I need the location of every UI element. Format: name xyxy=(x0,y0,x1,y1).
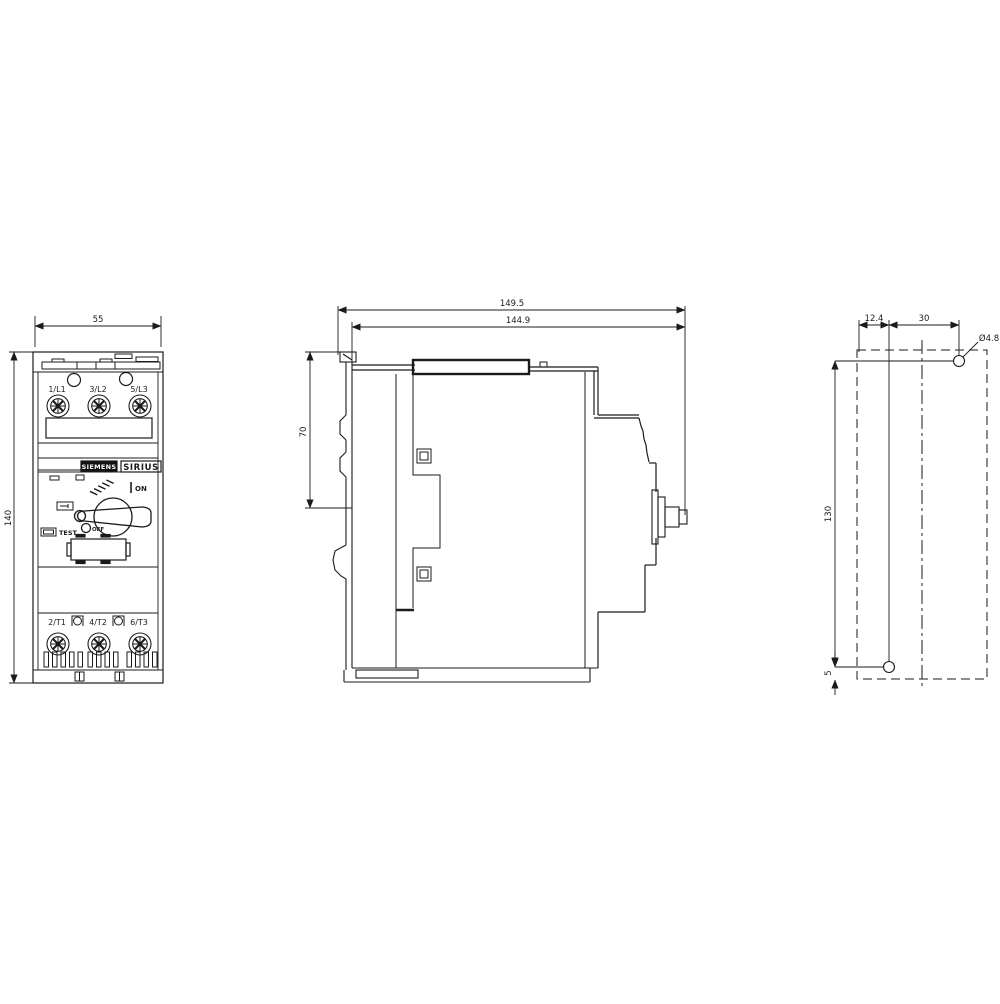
side-right-profile xyxy=(594,367,656,668)
trip-indicator-icon xyxy=(90,478,114,497)
drill-hole-spacing-h-dim-label: 30 xyxy=(919,314,930,324)
front-width-dimension: 55 xyxy=(35,315,161,347)
product-line-label: SIRIUS xyxy=(123,463,159,473)
terminal-screw-icon xyxy=(129,395,151,417)
side-upper-height-dim-label: 70 xyxy=(299,427,309,438)
top-terminals: 1/L1 3/L2 5/L3 xyxy=(47,373,151,418)
mounting-hole-top xyxy=(954,356,965,367)
on-label: ON xyxy=(135,485,147,493)
drill-bottom-offset-dimension: 5 xyxy=(824,651,835,695)
label-window xyxy=(67,535,130,564)
current-setting-dial[interactable] xyxy=(57,502,73,510)
terminal-screw-icon xyxy=(88,395,110,417)
side-upper-height-dimension: 70 xyxy=(299,352,352,508)
terminal-label-1L1: 1/L1 xyxy=(48,385,65,394)
side-base xyxy=(344,668,598,682)
brand-label: SIEMENS xyxy=(82,463,117,471)
vent-slats xyxy=(44,652,157,667)
test-button-label: TEST xyxy=(59,529,78,537)
dimension-drawing: 55 140 1/L1 3/L2 xyxy=(0,0,1000,1000)
bottom-terminals: 2/T1 4/T2 6/T3 xyxy=(47,616,151,655)
terminal-cover-recess xyxy=(46,418,152,438)
side-view: 149.5 144.9 70 xyxy=(299,299,687,682)
side-overall-depth-dimension: 149.5 xyxy=(338,299,685,515)
off-label: OFF xyxy=(92,527,104,533)
front-bottom-edge xyxy=(33,670,163,681)
mounting-hole-bottom xyxy=(884,662,895,673)
din-rail-edge xyxy=(333,352,356,670)
front-width-dim-label: 55 xyxy=(93,315,104,325)
terminal-label-3L2: 3/L2 xyxy=(89,385,106,394)
aux-contact-icon xyxy=(113,616,124,626)
drill-plan: 12.4 30 Ø4.8 130 5 xyxy=(824,314,999,695)
side-top-edge xyxy=(352,360,598,374)
drill-hole-spacing-h-dimension: 30 xyxy=(889,314,959,325)
terminal-label-4T2: 4/T2 xyxy=(89,618,107,627)
side-inner-structure xyxy=(396,372,585,668)
control-area: ON OFF TEST xyxy=(38,475,158,567)
drill-hole-spacing-v-dimension: 130 xyxy=(824,361,835,667)
terminal-label-5L3: 5/L3 xyxy=(130,385,147,394)
drill-hole-spacing-v-dim-label: 130 xyxy=(824,506,834,522)
front-height-dim-label: 140 xyxy=(4,510,14,526)
brand-band: SIEMENS SIRIUS xyxy=(38,461,161,473)
side-depth-dim-label: 144.9 xyxy=(506,316,530,326)
terminal-label-2T1: 2/T1 xyxy=(48,618,66,627)
top-cap-details xyxy=(42,354,160,369)
dimension-drawing-page: 55 140 1/L1 3/L2 xyxy=(0,0,1000,1000)
terminal-screw-icon xyxy=(47,395,69,417)
drill-bottom-offset-dim-label: 5 xyxy=(824,670,834,675)
terminal-label-6T3: 6/T3 xyxy=(130,618,148,627)
drill-edge-offset-dimension: 12.4 xyxy=(859,314,889,325)
rotary-knob-shaft xyxy=(652,490,687,544)
side-depth-dimension: 144.9 xyxy=(352,316,685,362)
aux-port-icon xyxy=(120,373,133,386)
drill-edge-offset-dim-label: 12.4 xyxy=(865,314,884,324)
hole-diameter-dim-label: Ø4.8 xyxy=(979,333,999,344)
side-overall-depth-dim-label: 149.5 xyxy=(500,299,524,309)
aux-port-icon xyxy=(68,374,81,387)
off-position-mark xyxy=(82,524,91,533)
aux-contact-icon xyxy=(72,616,83,626)
front-view: 55 140 1/L1 3/L2 xyxy=(4,315,163,683)
test-button[interactable] xyxy=(41,528,56,536)
front-height-dimension: 140 xyxy=(4,352,33,683)
